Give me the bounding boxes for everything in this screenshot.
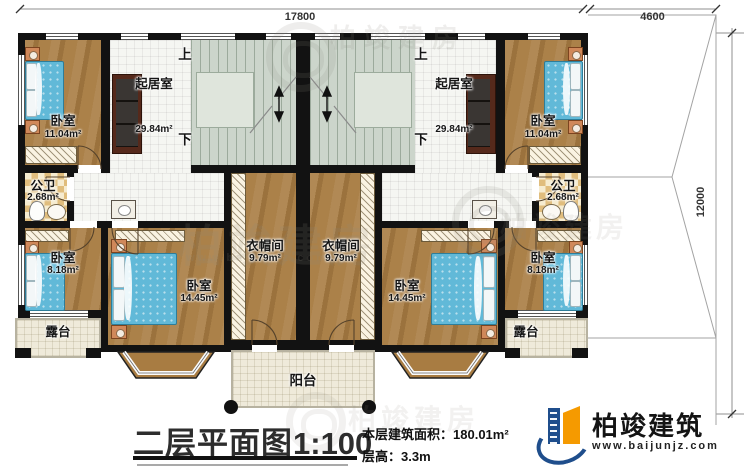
label-living-right: 起居室 (417, 78, 491, 92)
dim-17800: 17800 (250, 11, 350, 23)
balcony-column (362, 400, 376, 414)
label-balcony: 阳台 (268, 374, 338, 389)
label-bedroom-tr: 卧室 (505, 115, 581, 129)
door-opening (329, 345, 354, 352)
label-bedroom-small-left: 卧室 (25, 252, 101, 266)
toilet (29, 201, 45, 221)
pillow (570, 63, 581, 90)
floor-height-value: 3.3m (401, 449, 431, 464)
window (518, 310, 576, 318)
door-opening (509, 221, 536, 228)
brand-logo-icon (536, 402, 588, 460)
floor-area-label: 本层建筑面积： (362, 427, 453, 442)
dim-4600: 4600 (610, 11, 695, 23)
hallway-left (74, 173, 224, 221)
balcony-column (224, 400, 238, 414)
window (458, 33, 485, 40)
door-opening (78, 165, 101, 173)
label-cloak-left: 衣帽间 (234, 240, 296, 254)
pillow (570, 90, 581, 117)
pillow (483, 256, 495, 288)
window (315, 33, 340, 40)
wardrobe-bedroom-top-right (529, 146, 581, 164)
nightstand (25, 47, 40, 61)
dim-12000: 12000 (695, 180, 707, 224)
blanket-fold (124, 256, 132, 320)
area-bedroom-big-left: 14.45m² (161, 293, 237, 304)
pillow (483, 289, 495, 321)
window (18, 245, 25, 305)
terrace-stub (505, 348, 520, 358)
window (371, 33, 425, 40)
area-bath-left: 2.68m² (20, 192, 66, 203)
door-opening (505, 165, 528, 173)
nightstand (481, 239, 497, 253)
area-bath-right: 2.68m² (540, 192, 586, 203)
hallway-right (382, 173, 532, 221)
stair-down-label-right: 下 (412, 133, 430, 148)
terrace-stub (86, 348, 101, 358)
window (121, 33, 148, 40)
wardrobe-bedroom-top-left (25, 146, 77, 164)
stair-landing-left (196, 72, 254, 128)
label-terrace-left: 露台 (30, 326, 86, 340)
title-underline-thick (133, 456, 357, 460)
brand-url: www.baijunjz.com (592, 440, 719, 452)
toilet (563, 201, 579, 221)
label-bedroom-big-left: 卧室 (161, 280, 237, 294)
stair-down-label-left: 下 (176, 133, 194, 148)
vanity-basin (472, 200, 497, 219)
area-bedroom-tr: 11.04m² (505, 129, 581, 140)
nightstand (568, 47, 583, 61)
nightstand (481, 325, 497, 339)
window (46, 33, 78, 40)
window (528, 33, 560, 40)
nightstand (111, 325, 127, 339)
terrace-stub (572, 348, 588, 358)
stair-landing-right (354, 72, 412, 128)
sink (542, 204, 561, 220)
stair-up-label-right: 上 (412, 48, 430, 63)
door-opening (468, 221, 494, 228)
blanket-fold (35, 63, 42, 115)
window (181, 33, 235, 40)
floor-area-value: 180.01m² (453, 427, 509, 442)
window (18, 55, 25, 125)
door-opening (112, 221, 138, 228)
area-bedroom-small-right: 8.18m² (505, 265, 581, 276)
door-opening (252, 345, 277, 352)
label-terrace-right: 露台 (498, 326, 554, 340)
label-bedroom-big-right: 卧室 (369, 280, 445, 294)
label-living-left: 起居室 (117, 78, 191, 92)
blanket-fold (563, 63, 570, 115)
terrace-stub (15, 348, 31, 358)
nightstand (111, 239, 127, 253)
door-opening (70, 221, 97, 228)
area-cloak-right: 9.79m² (310, 253, 372, 264)
vanity-basin (111, 200, 136, 219)
blanket-fold (474, 256, 482, 320)
area-bedroom-big-right: 14.45m² (369, 293, 445, 304)
logo-slab (563, 406, 580, 444)
door-opening (532, 177, 539, 201)
window (30, 310, 88, 318)
floor-area-line: 本层建筑面积：180.01m² (362, 424, 509, 443)
label-bedroom-small-right: 卧室 (505, 252, 581, 266)
door-opening (67, 177, 74, 201)
floor-plan-canvas: 柏竣建房 柏竣建房 www.baijunjz.com 柏竣建房 柏竣建房 上 下… (0, 0, 750, 471)
window (266, 33, 291, 40)
floor-height-label: 层高： (362, 449, 401, 464)
area-living-right: 29.84m² (417, 124, 491, 135)
label-bedroom-tl: 卧室 (25, 115, 101, 129)
logo-tower (548, 408, 560, 444)
sink (47, 204, 66, 220)
area-living-left: 29.84m² (117, 124, 191, 135)
floor-height-line: 层高：3.3m (362, 446, 431, 465)
title-underline-thin (137, 464, 348, 466)
pillow (570, 281, 581, 307)
area-bedroom-small-left: 8.18m² (25, 265, 101, 276)
area-bedroom-tl: 11.04m² (25, 129, 101, 140)
label-cloak-right: 衣帽间 (310, 240, 372, 254)
brand-name: 柏竣建筑 (592, 406, 704, 443)
area-cloak-left: 9.79m² (234, 253, 296, 264)
stair-up-label-left: 上 (176, 48, 194, 63)
